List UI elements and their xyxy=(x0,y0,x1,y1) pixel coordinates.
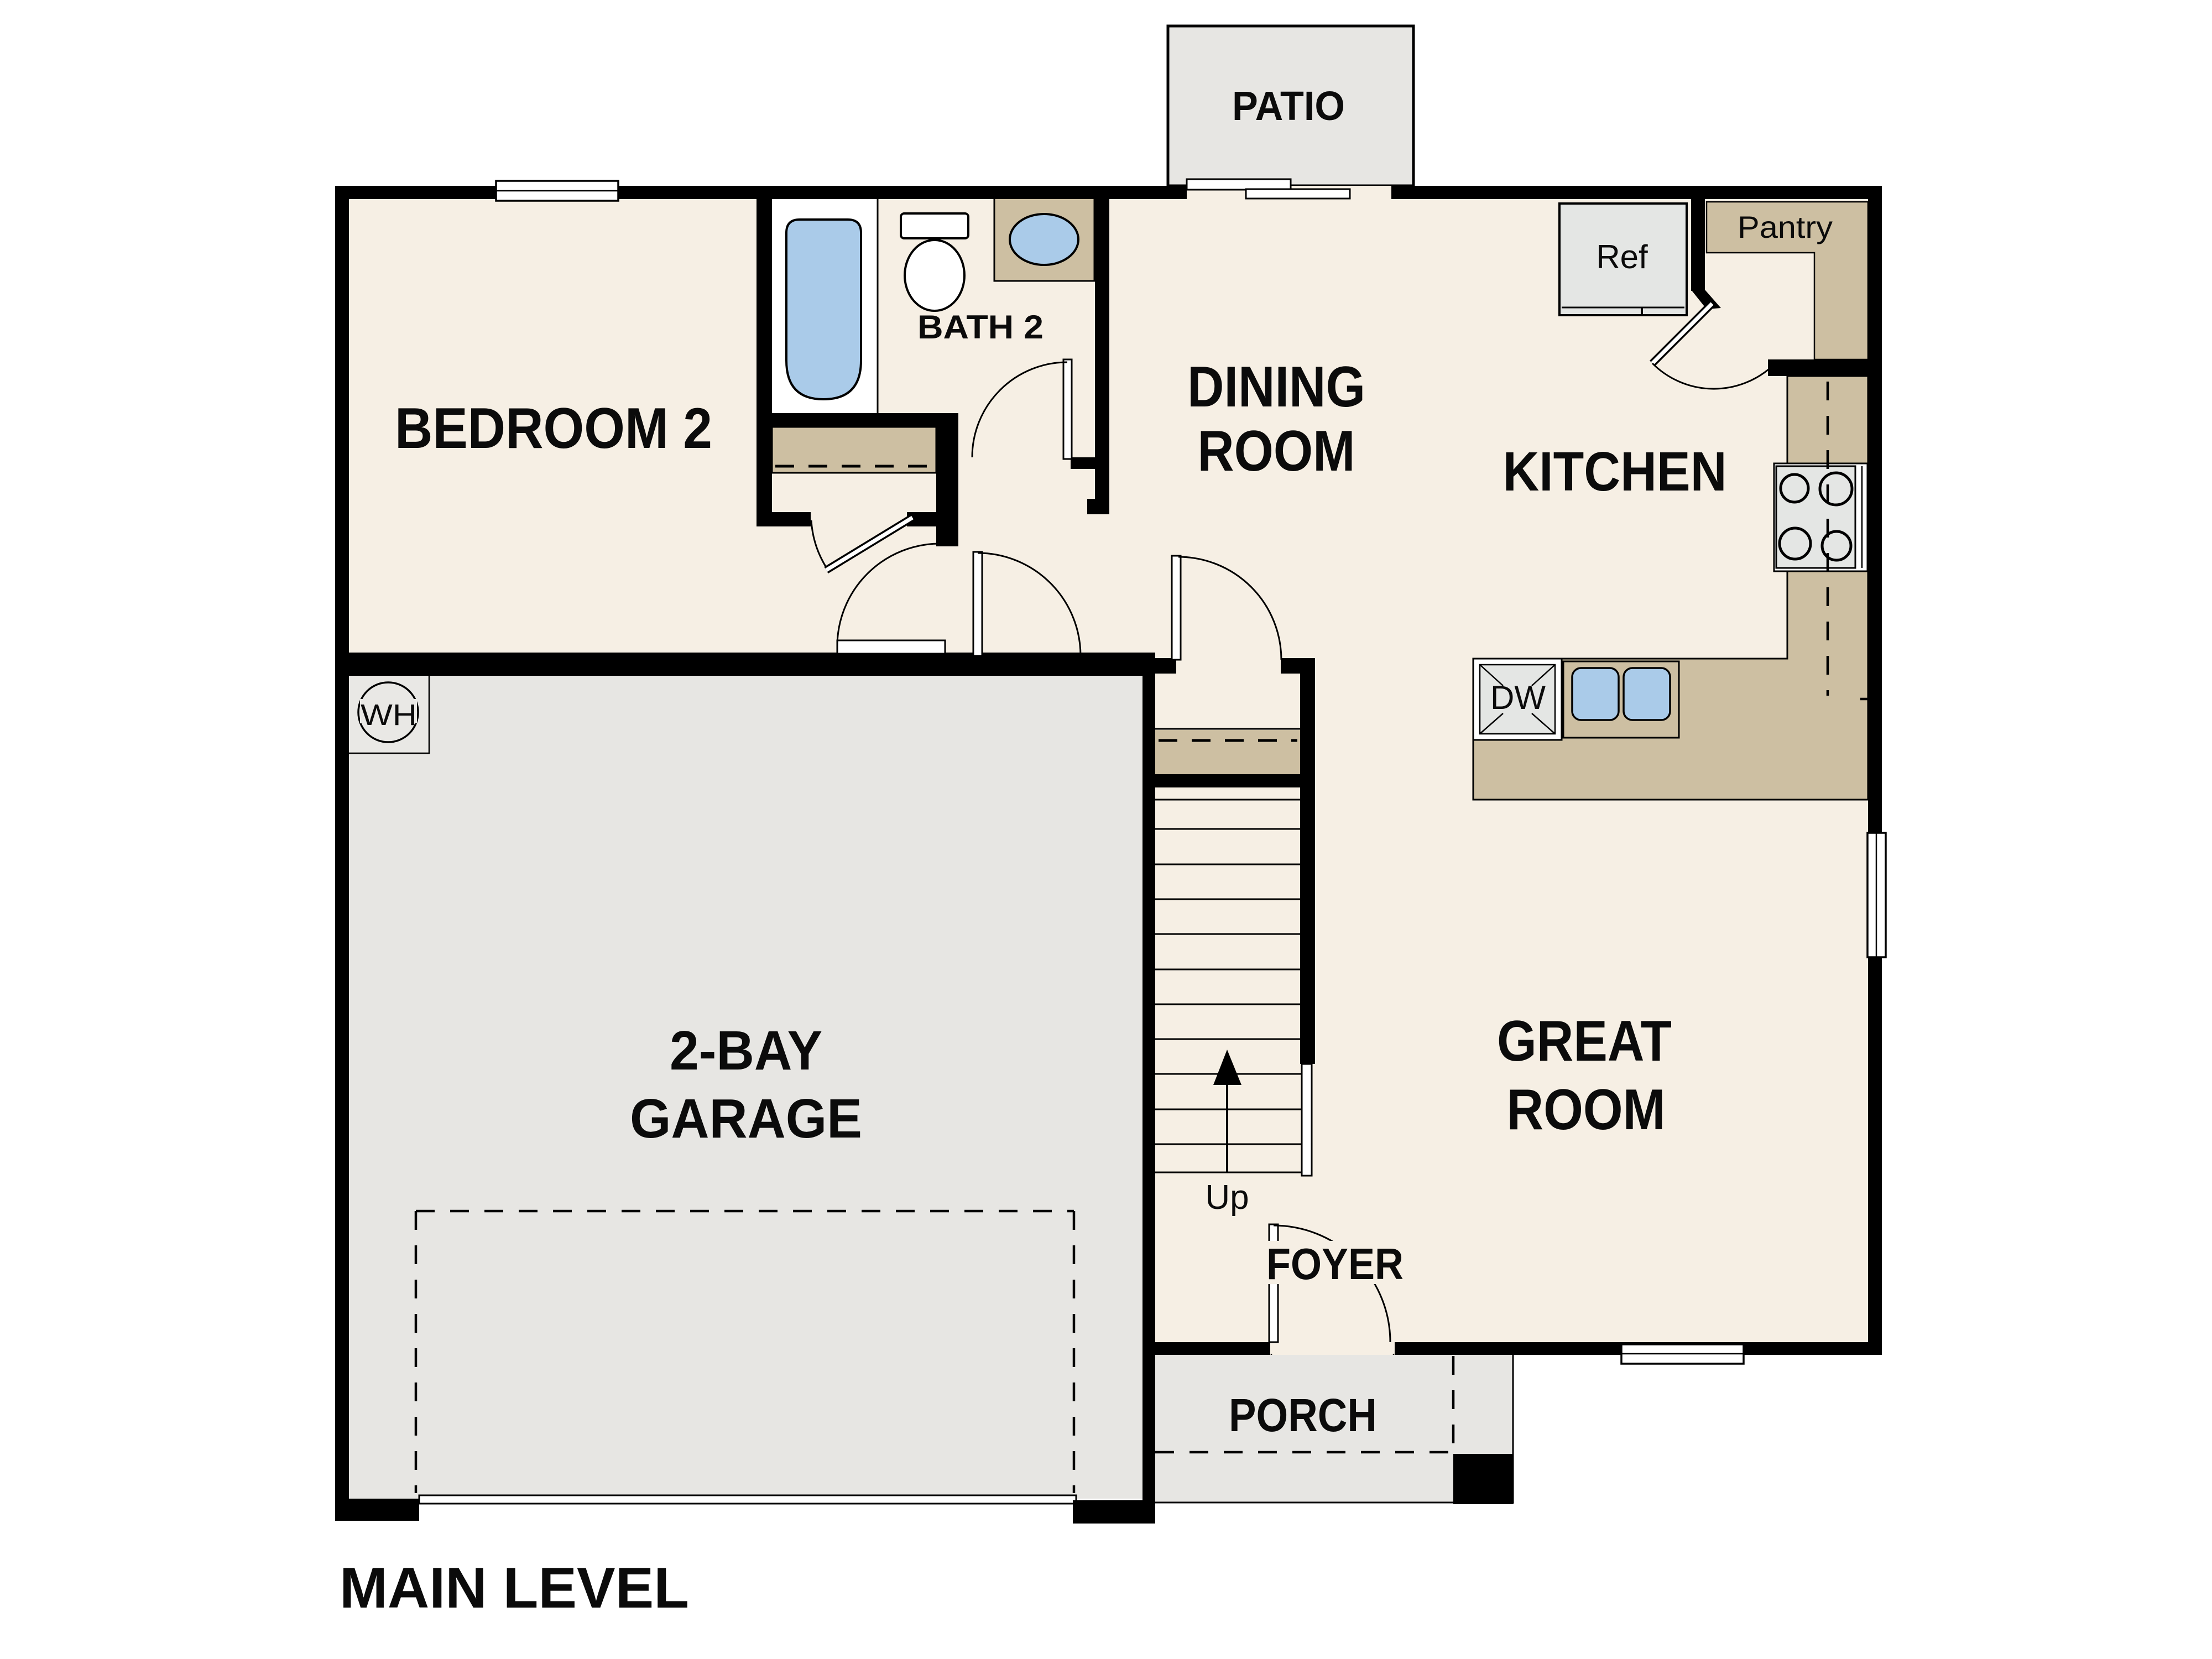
svg-text:DW: DW xyxy=(1490,679,1546,716)
svg-text:KITCHEN: KITCHEN xyxy=(1503,441,1727,503)
svg-text:WH: WH xyxy=(361,698,417,732)
svg-text:GARAGE: GARAGE xyxy=(630,1088,862,1150)
svg-text:PORCH: PORCH xyxy=(1229,1389,1377,1441)
svg-text:GREAT: GREAT xyxy=(1497,1009,1672,1073)
svg-text:ROOM: ROOM xyxy=(1198,419,1355,483)
svg-text:Pantry: Pantry xyxy=(1738,210,1833,244)
svg-text:BATH 2: BATH 2 xyxy=(917,309,1044,346)
svg-text:DINING: DINING xyxy=(1187,355,1365,419)
svg-text:2-BAY: 2-BAY xyxy=(670,1020,822,1082)
svg-text:Up: Up xyxy=(1205,1178,1249,1217)
svg-text:PATIO: PATIO xyxy=(1232,83,1345,129)
svg-text:ROOM: ROOM xyxy=(1507,1078,1666,1142)
svg-text:BEDROOM 2: BEDROOM 2 xyxy=(395,397,712,461)
svg-text:MAIN LEVEL: MAIN LEVEL xyxy=(340,1556,689,1620)
svg-text:Ref: Ref xyxy=(1596,238,1648,275)
svg-text:FOYER: FOYER xyxy=(1266,1239,1404,1288)
